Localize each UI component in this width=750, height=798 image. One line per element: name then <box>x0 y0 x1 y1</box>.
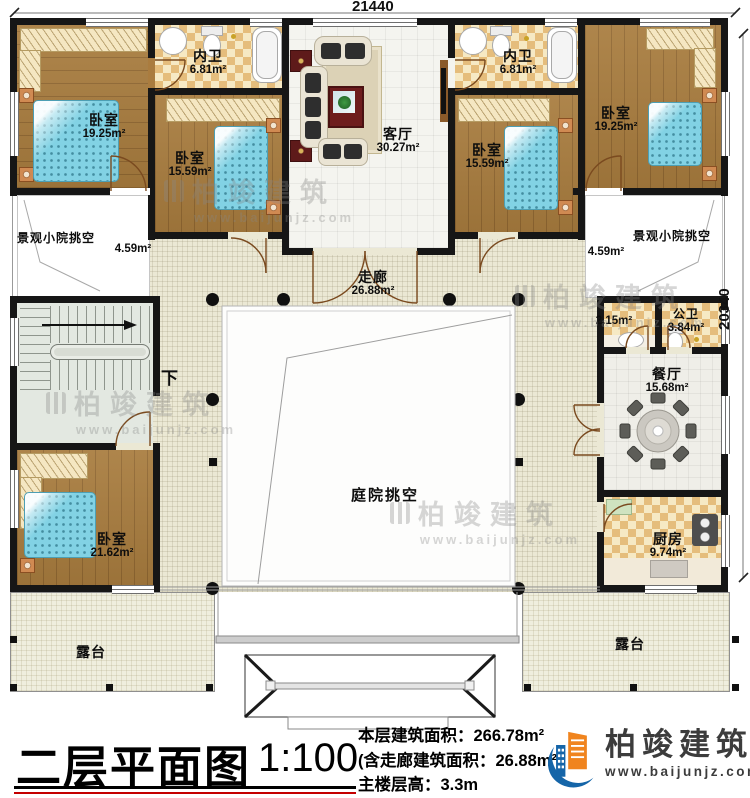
stair-rail <box>50 344 150 360</box>
window <box>721 92 730 156</box>
drain-dot <box>231 34 236 39</box>
sofa-cushion <box>323 144 341 159</box>
drain-dot <box>524 36 529 41</box>
bathtub-inner <box>256 31 278 79</box>
room-label-court-right: 景观小院挑空 <box>633 230 711 244</box>
column <box>209 458 217 466</box>
wall <box>148 88 289 95</box>
door-opening <box>597 403 604 457</box>
sofa-cushion <box>305 121 321 139</box>
wall <box>448 88 585 95</box>
wall <box>448 18 455 255</box>
terrace-post <box>732 636 739 643</box>
window <box>10 92 19 156</box>
area-label-court-left: 4.59m² <box>115 243 151 255</box>
sofa-seat <box>318 138 368 166</box>
door-opening <box>626 347 650 354</box>
company-logo-text: 柏竣建筑 www.baijunjz.com <box>605 728 750 779</box>
sofa-cushion <box>305 73 321 93</box>
window <box>640 18 710 27</box>
floor-height-line: 主楼层高：3.3m <box>358 773 562 798</box>
door-mat <box>606 499 632 515</box>
terrace-post <box>732 684 739 691</box>
bed <box>214 126 268 210</box>
room-label-bedroom-top-left: 卧室19.25m² <box>83 112 126 141</box>
door-opening <box>116 443 153 450</box>
room-label-public-bath: 公卫3.84m² <box>668 308 704 335</box>
wall <box>578 18 585 240</box>
wall <box>597 347 728 354</box>
bed <box>504 126 558 210</box>
floor-plan-page: 21440 20340 <box>0 0 750 798</box>
wall <box>153 443 160 592</box>
title-underline-black <box>14 786 356 789</box>
bathtub-inner <box>551 31 573 79</box>
company-logo: 柏竣建筑 www.baijunjz.com <box>543 728 750 790</box>
sink-icon <box>618 332 644 348</box>
terrace-post <box>10 684 17 691</box>
door-opening <box>148 58 155 88</box>
stove-icon <box>692 514 718 546</box>
room-label-bedroom-top-right: 卧室19.25m² <box>595 105 638 134</box>
wardrobe <box>646 28 714 50</box>
room-label-corridor: 走廊26.88m² <box>352 269 395 298</box>
wardrobe <box>20 28 147 52</box>
tv-icon <box>441 68 446 114</box>
sofa-cushion <box>345 43 365 59</box>
column <box>512 293 525 306</box>
room-label-bedroom-bottom-left: 卧室21.62m² <box>91 531 134 560</box>
floor-area-line: 本层建筑面积：266.78m² <box>358 724 562 749</box>
area-label-washroom: 2.15m² <box>596 315 632 327</box>
wardrobe <box>19 50 41 92</box>
door-opening <box>228 232 268 239</box>
bed <box>24 492 96 558</box>
window <box>645 585 697 594</box>
door-opening <box>585 188 623 195</box>
column <box>443 293 456 306</box>
door-opening <box>666 347 692 354</box>
terrace-post <box>630 684 637 691</box>
corridor-area-line: (含走廊建筑面积：26.88m²) <box>358 749 562 774</box>
void-edge-line <box>724 196 725 296</box>
wall <box>153 296 160 396</box>
sofa-cushion <box>305 97 321 117</box>
coffee-table <box>328 86 364 128</box>
room-label-bath-left: 内卫6.81m² <box>190 48 226 77</box>
room-label-living: 客厅30.27m² <box>377 126 420 155</box>
sink-icon <box>159 27 187 55</box>
room-label-terrace-right: 露台 <box>615 636 645 652</box>
nightstand <box>266 118 281 133</box>
wall <box>282 18 289 255</box>
wardrobe <box>166 98 280 122</box>
window <box>10 470 19 528</box>
nightstand <box>20 558 35 573</box>
terrace-left-floor <box>10 592 215 692</box>
room-label-bath-right: 内卫6.81m² <box>500 48 536 77</box>
window <box>721 396 730 454</box>
stair-flight-lower <box>50 360 150 390</box>
nightstand <box>702 166 717 181</box>
terrace-post <box>206 684 213 691</box>
nightstand <box>19 88 34 103</box>
nightstand <box>558 200 573 215</box>
window <box>112 585 154 594</box>
terrace-post <box>524 684 531 691</box>
room-label-courtyard: 庭院挑空 <box>351 487 419 504</box>
column <box>206 293 219 306</box>
column <box>277 293 290 306</box>
column <box>206 393 219 406</box>
wall <box>655 296 662 354</box>
window <box>86 18 148 27</box>
wall <box>10 296 160 303</box>
plant-icon <box>338 96 351 109</box>
company-name: 柏竣建筑 <box>605 728 750 762</box>
column <box>206 582 219 595</box>
bed <box>648 102 702 166</box>
wall <box>597 490 728 497</box>
wall <box>597 532 604 592</box>
dimension-right: 20340 <box>716 288 733 330</box>
door-opening <box>597 502 604 532</box>
terrace-post <box>106 684 113 691</box>
wardrobe <box>694 48 716 88</box>
sofa-cushion <box>344 144 362 159</box>
room-label-bedroom-mid-right: 卧室15.59m² <box>466 142 509 171</box>
sink-icon <box>459 27 487 55</box>
stair-flight-upper <box>50 306 150 343</box>
window <box>721 515 730 567</box>
room-label-dining: 餐厅15.68m² <box>646 366 689 395</box>
wall <box>148 18 155 240</box>
loveseat <box>314 36 372 66</box>
column <box>515 458 523 466</box>
stair-winders <box>20 306 50 390</box>
sofa <box>300 66 328 148</box>
sofa-cushion <box>321 43 341 59</box>
terrace-post <box>10 636 17 643</box>
nightstand <box>558 118 573 133</box>
nightstand <box>702 88 717 103</box>
door-opening <box>110 188 150 195</box>
nightstand <box>266 200 281 215</box>
column <box>512 582 525 595</box>
drain-dot <box>694 337 699 342</box>
room-label-terrace-left: 露台 <box>76 644 106 660</box>
wardrobe <box>458 98 550 122</box>
company-logo-icon <box>543 728 599 790</box>
area-summary: 本层建筑面积：266.78m² (含走廊建筑面积：26.88m²) 主楼层高：3… <box>358 724 562 798</box>
title-underline-red <box>14 792 356 794</box>
column <box>512 393 525 406</box>
company-website: www.baijunjz.com <box>605 764 750 779</box>
window <box>545 18 577 27</box>
kitchen-rug <box>650 560 688 578</box>
wall <box>597 296 728 303</box>
room-label-kitchen: 厨房9.74m² <box>650 531 686 560</box>
window <box>10 318 19 366</box>
door-opening <box>478 232 518 239</box>
nightstand <box>19 167 34 182</box>
room-label-court-left: 景观小院挑空 <box>17 232 95 246</box>
stairs-down-label: 下 <box>161 369 179 389</box>
door-opening <box>313 248 417 255</box>
window <box>313 18 417 27</box>
dimension-top: 21440 <box>352 0 394 15</box>
scale-label: 1:100 <box>258 736 358 781</box>
wardrobe <box>20 453 88 479</box>
area-label-court-right: 4.59m² <box>588 246 624 258</box>
void-edge-line <box>12 196 13 296</box>
window <box>250 18 282 27</box>
door-opening <box>448 58 455 88</box>
room-label-bedroom-mid-left: 卧室15.59m² <box>169 150 212 179</box>
